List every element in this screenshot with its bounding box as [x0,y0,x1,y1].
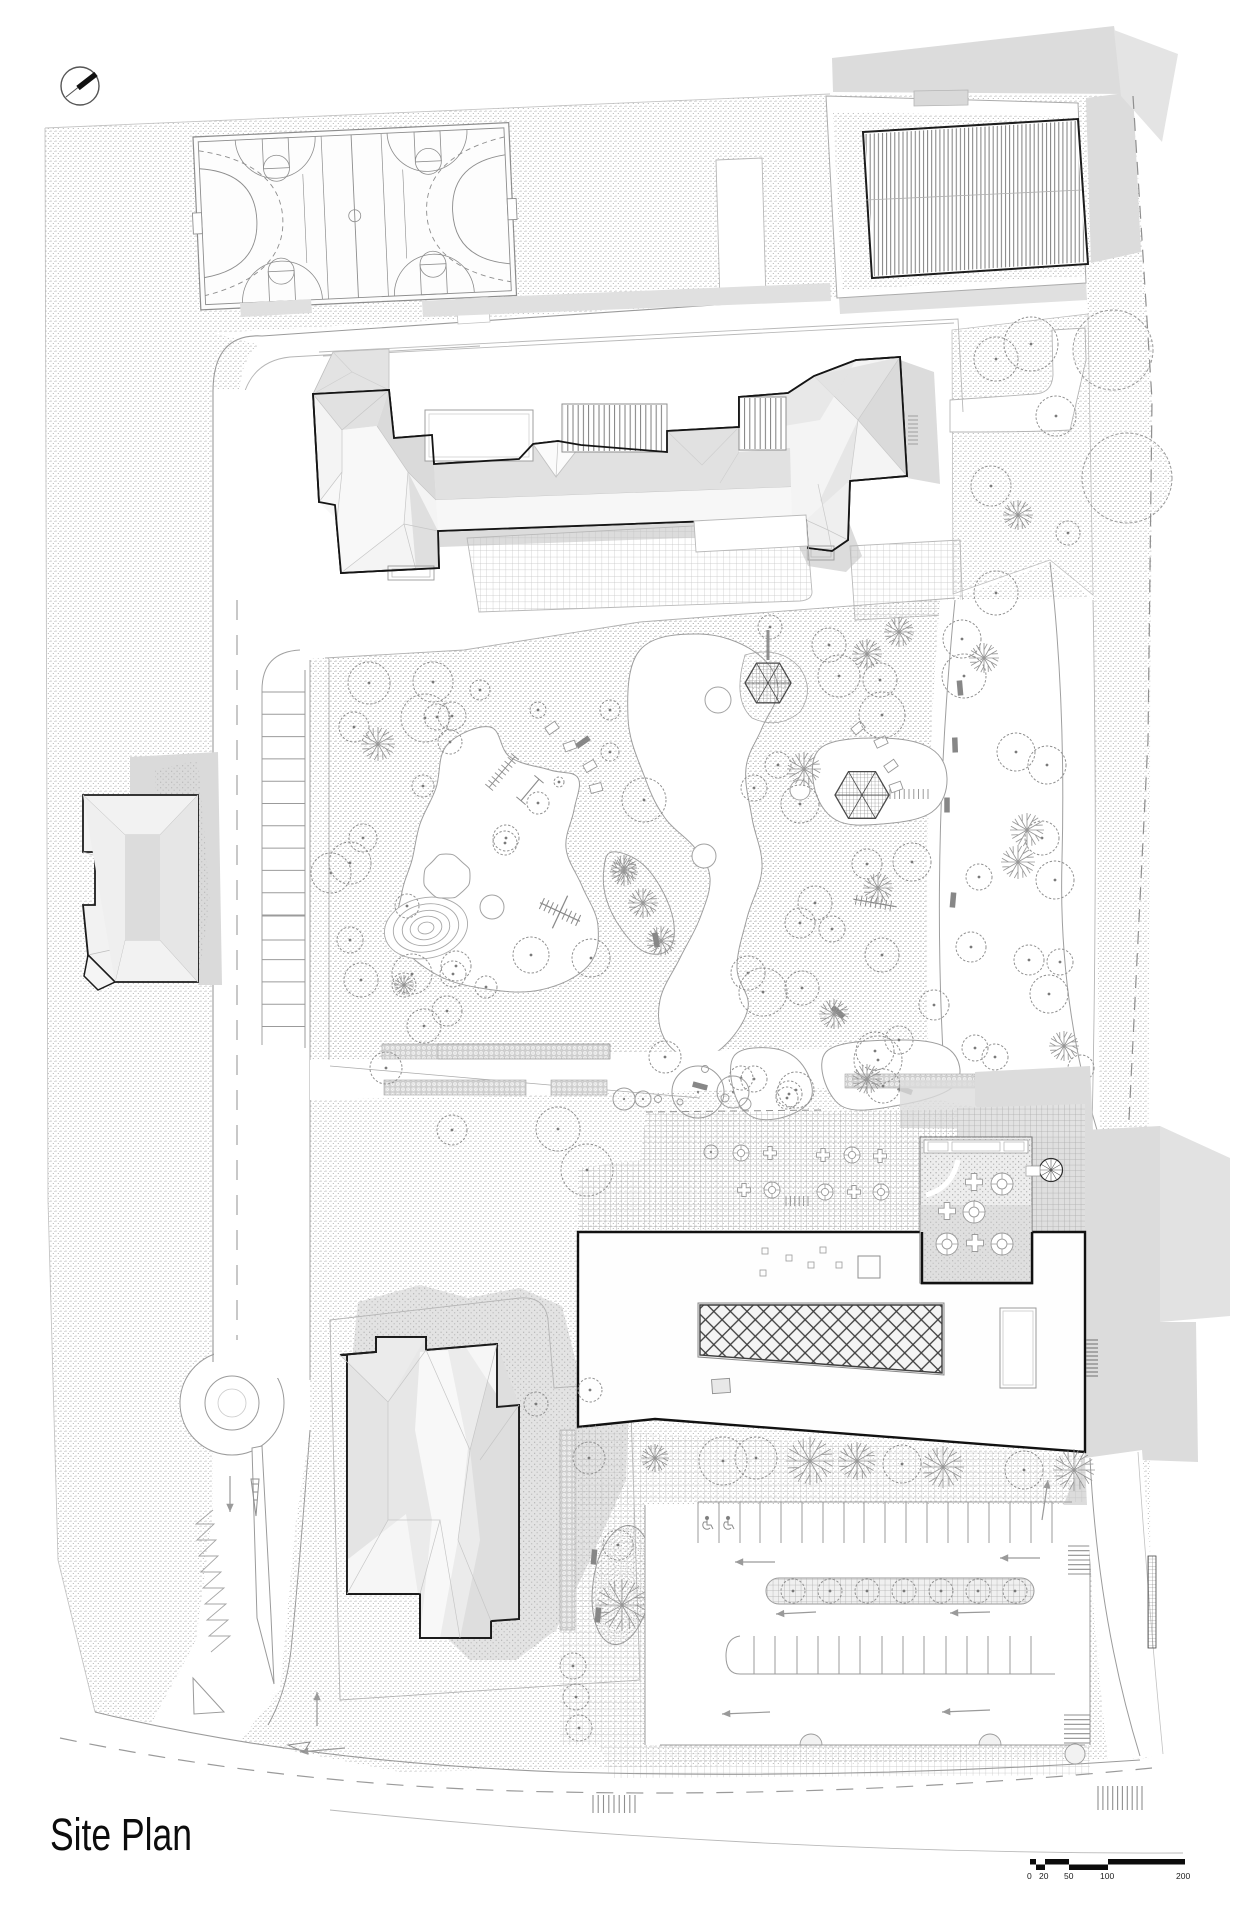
svg-text:100: 100 [1100,1871,1114,1881]
svg-text:50: 50 [1064,1871,1074,1881]
svg-text:20: 20 [1039,1871,1049,1881]
svg-text:Site Plan: Site Plan [50,1809,192,1860]
svg-text:0: 0 [1027,1871,1032,1881]
svg-text:200: 200 [1176,1871,1190,1881]
